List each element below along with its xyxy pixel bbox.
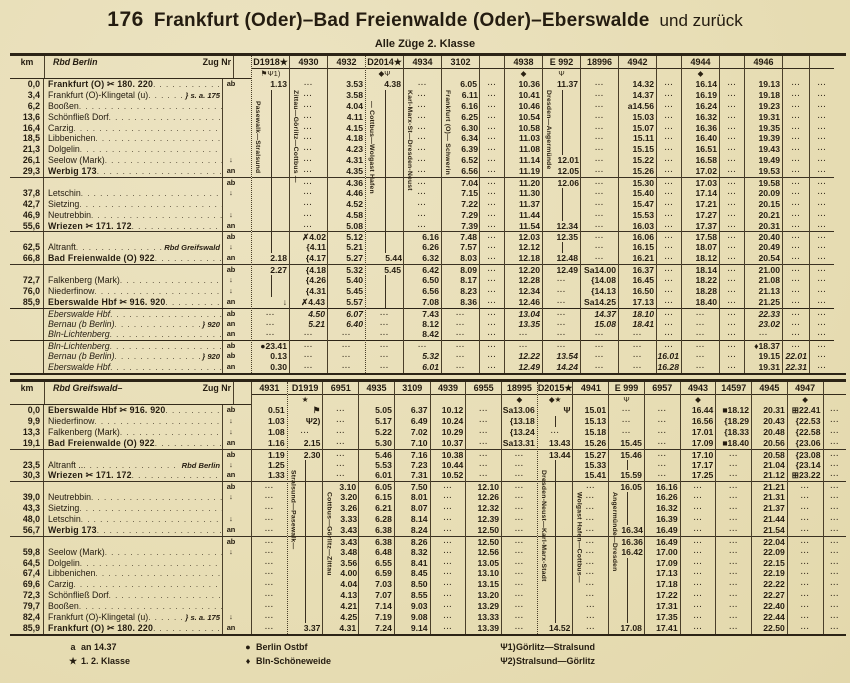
time-cell: 8.36 [442,297,479,308]
time-cell: ... [581,242,618,253]
time-cell: ... [502,481,537,492]
station-name: Falkenberg (Mark) [48,275,120,286]
station-km: 64,5 [10,558,44,569]
time-cell: ... [810,188,834,199]
time-cell: ✗4.43 [290,297,327,308]
time-cell: ... [480,297,504,308]
time-cell: 6.38 [359,536,394,547]
time-cell: ... [720,123,744,134]
train-symbol: Ψ [609,395,644,405]
time-cell: 20.58 [752,449,787,460]
time-cell: ... [681,623,716,634]
through-line [271,123,272,134]
arrival-departure-mark: ab [222,265,239,275]
arrival-departure-mark [222,144,239,155]
time-cell: ... [290,329,327,340]
through-line [555,503,556,514]
train-column-D2014: D2014★◆Ψ4.385.445.45..................— … [365,56,404,373]
time-cell: ... [581,177,618,188]
time-cell: 20.56 [752,438,787,449]
time-cell: 11.19 [505,166,542,177]
time-cell: ... [720,253,744,264]
arrival-departure-mark [222,112,239,123]
time-cell: ... [657,253,681,264]
legend-text: Bln-Schöneweide [256,656,331,666]
time-cell: ... [442,351,479,362]
time-cell: ... [466,460,501,471]
time-cell: ... [581,90,618,101]
time-cell: ... [657,319,681,330]
dot-leader [81,188,222,199]
time-cell: 21.00 [745,264,782,275]
arrival-departure-mark: ab [222,79,239,90]
dot-leader [95,568,222,579]
time-cell: ... [466,427,501,438]
time-cell: 4.31 [323,623,358,634]
time-cell: 17.01 [681,427,716,438]
time-cell: ... [480,264,504,275]
time-cell: 6.16 [404,231,441,242]
time-cell [538,460,573,471]
time-cell: 6.56 [404,286,441,297]
time-cell: ... [824,405,847,416]
time-cell: 19.53 [745,166,782,177]
time-cell: 15.07 [619,123,656,134]
time-cell: 5.22 [359,427,394,438]
time-cell: ... [720,112,744,123]
time-cell: ... [681,481,716,492]
train-number: 18995 [502,382,537,395]
train-column-18995: 18995◆Sa13.06{13.18{13.24Sa13.31........… [501,382,537,634]
through-line [271,242,272,253]
time-cell: 4.04 [328,101,365,112]
station-km: 39,0 [10,492,44,503]
time-cell: ... [824,525,847,536]
time-cell: Sa14.25 [581,297,618,308]
arrival-departure-mark [222,579,239,590]
train-column-18996: 18996...................................… [580,56,618,373]
time-cell: 7.03 [359,579,394,590]
train-symbol [619,69,656,79]
time-cell: ... [581,253,618,264]
arrival-departure-mark: ↓ [222,612,239,623]
time-cell: 19.35 [745,123,782,134]
time-cell: 19.49 [745,155,782,166]
time-cell: 16.21 [619,253,656,264]
time-cell: ... [783,199,809,210]
through-line [385,210,386,221]
time-cell: 15.40 [619,188,656,199]
station-row: 13,6Schönfließ Dorf [10,112,251,123]
train-number: 4945 [752,382,787,395]
time-cell: ... [543,297,580,308]
time-cell: 13.05 [466,558,501,569]
through-line [562,112,563,123]
station-km: 76,0 [10,286,44,297]
time-cell: ... [681,558,716,569]
time-cell: 4.18 [328,133,365,144]
time-cell: 5.57 [328,297,365,308]
train-column-4944: 4944◆16.1416.1916.2416.3216.3616.4016.51… [681,56,719,373]
time-cell: ... [720,133,744,144]
time-cell: 17.58 [682,231,719,242]
time-cell: 20.49 [745,242,782,253]
train-number: 3109 [395,382,430,395]
zugnr-header: Zug Nr [165,56,233,78]
time-cell: ... [581,123,618,134]
time-cell: 21.31 [752,492,787,503]
time-cell: 10.54 [505,112,542,123]
route-label: — Cottbus—Wolgast Hafen [366,101,375,265]
through-line [562,133,563,144]
time-cell: ... [573,612,608,623]
time-cell: ... [581,166,618,177]
time-cell: 13.33 [466,612,501,623]
time-cell: 20.54 [745,253,782,264]
through-line [555,514,556,525]
time-cell: ... [824,601,847,612]
time-cell: ... [252,623,287,634]
arrival-departure-mark [222,590,239,601]
train-column-blank3: ........................................… [719,56,744,373]
legend-text: 1. 2. Klasse [81,656,130,666]
time-cell: ... [657,286,681,297]
train-column-4941: 494115.0115.1315.1815.2615.2715.3315.41.… [572,382,608,634]
time-cell: ⊞22.41 [788,405,823,416]
through-line [627,612,628,623]
time-cell: ... [720,199,744,210]
station-row: 43,3Sietzing [10,503,251,514]
time-cell: ... [290,362,327,373]
legend-item: Ψ1)Görlitz—Stralsund [500,642,780,652]
station-name: Altranft .. [48,460,83,471]
time-cell: ... [681,579,716,590]
time-cell: 1.25 [252,460,287,471]
train-column-blank2: ........................................… [656,56,681,373]
time-cell: ... [783,112,809,123]
train-number: 4931 [252,382,287,395]
time-cell: 17.18 [645,579,680,590]
station-row: 85,9Eberswalde Hbf ✂ 916. 920an [10,297,251,308]
time-cell: 17.13 [645,568,680,579]
station-name: Booßen [48,601,79,612]
time-cell: 1.13 [252,79,289,90]
train-number: D1919 [288,382,323,395]
time-cell: ... [480,133,504,144]
station-km: 0,0 [10,79,44,90]
time-cell: 6.26 [404,242,441,253]
train-column-4930: 4930....................................… [289,56,327,373]
time-cell: 6.48 [359,547,394,558]
time-cell: 15.11 [619,133,656,144]
train-symbol [745,69,782,79]
time-cell: ... [323,427,358,438]
time-cell: ... [619,329,656,340]
time-cell: ... [783,242,809,253]
station-km [10,232,44,242]
legend-item: aan 14.37 [65,642,240,652]
time-cell: 5.12 [328,231,365,242]
time-cell: {14.13 [581,286,618,297]
time-cell: 6.05 [442,79,479,90]
train-column-3109: 31096.376.497.027.107.167.237.317.508.01… [394,382,430,634]
train-symbol: ◆ [505,69,542,79]
time-cell: 17.08 [609,623,644,634]
through-line [305,568,306,579]
time-cell: ... [824,503,847,514]
train-number [783,56,809,69]
time-cell: ... [323,416,358,427]
time-cell: ... [783,329,809,340]
time-cell: ... [502,568,537,579]
time-cell: ... [502,470,537,481]
station-name: Bernau (b Berlin) [48,319,115,330]
time-cell: ... [810,362,834,373]
train-number: 4935 [359,382,394,395]
time-cell: 18.07 [682,242,719,253]
station-row: 26,1Seelow (Mark)↓ [10,155,251,166]
arrival-departure-mark [222,101,239,112]
time-cell: 10.12 [431,405,466,416]
station-row: ab [10,177,251,188]
time-cell: ... [502,449,537,460]
time-cell: ... [442,340,479,351]
time-cell: 11.20 [505,177,542,188]
time-cell: ... [720,297,744,308]
time-cell: ... [252,319,289,330]
train-symbol: ◆ [681,395,716,405]
time-cell: 11.14 [505,155,542,166]
time-cell: 12.22 [505,351,542,362]
station-km: 43,3 [10,503,44,514]
time-cell: 16.14 [682,79,719,90]
through-line [305,503,306,514]
time-cell: ... [431,601,466,612]
through-line [385,232,386,242]
time-cell: 17.31 [645,601,680,612]
time-cell [609,590,644,601]
time-cell: ... [657,221,681,232]
time-cell: ... [323,470,358,481]
time-cell: ... [480,351,504,362]
time-cell: ... [783,188,809,199]
arrival-departure-mark: ↓ [222,492,239,503]
time-cell: ●23.41 [252,340,289,351]
time-cell: ... [581,351,618,362]
train-symbol: ◆★ [538,395,573,405]
dot-leader [94,286,222,297]
station-name: Wriezen ✂ 171. 172 [48,221,132,232]
station-km: 18,5 [10,133,44,144]
arrival-departure-mark: ↓ [222,286,239,297]
through-line [627,514,628,525]
time-cell: ... [645,460,680,471]
through-line [385,275,386,286]
time-cell: ... [404,340,441,351]
time-cell: ... [788,601,823,612]
time-cell: ... [657,177,681,188]
station-row: Eberswalde Hbfan [10,362,251,373]
station-name: Niederfinow [48,286,94,297]
through-line [385,155,386,166]
through-line [562,199,563,210]
time-cell: ... [681,547,716,558]
time-cell: 5.21 [290,319,327,330]
time-cell: 8.42 [404,329,441,340]
station-row: 79,7Booßen [10,601,251,612]
time-cell: Ψ2) [288,416,323,427]
station-note: Rbd Greifswald [162,243,222,253]
time-cell: ... [720,221,744,232]
dot-leader [94,416,222,427]
time-cell: 12.49 [505,362,542,373]
time-cell: 10.29 [431,427,466,438]
arrival-departure-mark: ↓ [222,427,239,438]
station-row: 72,3Schönfließ Dorf [10,590,251,601]
time-cell: 7.57 [442,242,479,253]
dot-leader [110,329,222,340]
time-cell [609,460,644,471]
station-km: 46,9 [10,210,44,221]
time-cell: 16.51 [682,144,719,155]
time-cell: ... [824,514,847,525]
through-line [627,601,628,612]
time-cell: 8.24 [395,525,430,536]
time-cell: 13.39 [466,623,501,634]
time-cell: 4.52 [328,199,365,210]
time-cell: ... [810,199,834,210]
time-cell: ... [502,612,537,623]
time-cell: 6.49 [395,416,430,427]
time-cell [288,460,323,471]
time-cell: Ψ [538,405,573,416]
time-cell: 16.05 [609,481,644,492]
time-cell: ... [290,340,327,351]
station-row: 23,5Altranft ..Rbd Berlin↓ [10,460,251,471]
time-cell: ... [720,210,744,221]
time-cell: 7.02 [395,427,430,438]
time-cell: 22.44 [752,612,787,623]
dot-leader [79,101,222,112]
time-cell: 18.41 [619,319,656,330]
station-name: Frankfurt (O)-Klingetal (u) [48,90,148,101]
through-line [271,210,272,221]
arrival-departure-mark [222,558,239,569]
through-line [271,155,272,166]
dot-leader [109,112,222,123]
time-cell: 2.27 [252,264,289,275]
train-number: D2014★ [366,56,403,69]
time-cell: 6.37 [395,405,430,416]
time-cell: ... [431,590,466,601]
time-cell: 22.22 [752,579,787,590]
train-symbol: ◆Ψ [366,69,403,79]
through-line [555,601,556,612]
time-cell: ... [681,492,716,503]
time-cell: ... [783,166,809,177]
time-cell: ... [824,612,847,623]
time-cell: ... [581,362,618,373]
time-cell: ... [720,188,744,199]
time-cell: ... [480,123,504,134]
time-cell: ... [502,503,537,514]
time-cell: ... [657,188,681,199]
train-number: 18996 [581,56,618,69]
train-number [657,56,681,69]
time-cell: 18.28 [682,286,719,297]
arrival-departure-mark: an [222,221,239,232]
time-cell: 16.06 [619,231,656,242]
station-km: 55,6 [10,221,44,232]
train-column-4938: 4938◆10.3610.4110.4610.5410.5811.0311.08… [504,56,542,373]
time-cell: ... [480,242,504,253]
time-cell: 7.50 [395,481,430,492]
train-number: 4939 [431,382,466,395]
time-cell [609,601,644,612]
time-cell: ... [681,514,716,525]
station-km [10,341,44,351]
station-row: Bernau (b Berlin)} 920an [10,319,251,330]
time-cell: 16.32 [682,112,719,123]
train-symbol [442,69,479,79]
station-row: 82,4Frankfurt (O)-Klingetal (u)} s. a. 1… [10,612,251,623]
station-block: kmRbd Greifswald–Zug Nr0,0Eberswalde Hbf… [10,382,251,634]
train-column-D1918: D1918★⚑Ψ1)1.132.182.27↓.........●23.410.… [251,56,290,373]
time-cell: ... [783,79,809,90]
time-cell: 16.39 [645,514,680,525]
through-line [271,112,272,123]
through-line [555,590,556,601]
station-note: } 920 [200,352,222,362]
through-line [385,178,386,188]
time-cell: 6.07 [328,308,365,319]
station-km: 69,6 [10,579,44,590]
through-line [305,525,306,536]
time-cell: 4.15 [328,123,365,134]
time-cell: 10.38 [431,449,466,460]
time-cell: ... [720,144,744,155]
time-cell: ... [810,79,834,90]
time-cell: ... [581,133,618,144]
route-label: Cottbus—Görlitz—Zittau [323,492,332,623]
station-row: 66,8Bad Freienwalde (O) 922an [10,253,251,264]
time-cell: 16.58 [682,155,719,166]
through-line [271,221,272,232]
time-cell: 20.15 [745,199,782,210]
station-name: Letschin [48,514,81,525]
through-line [555,612,556,623]
train-number: 4946 [745,56,782,69]
time-cell: 15.41 [573,470,608,481]
time-cell: 20.21 [745,210,782,221]
through-line [271,232,272,242]
station-name: Bad Freienwalde (O) 922 [48,438,155,449]
time-cell: 16.24 [682,101,719,112]
station-name: Wriezen ✂ 171. 172 [48,470,132,481]
legend-item: ★1. 2. Klasse [65,656,240,667]
arrival-departure-mark: ab [222,450,239,460]
time-cell: ... [720,242,744,253]
time-cell: ... [783,253,809,264]
station-name: Eberswalde Hbf ✂ 916. 920 [48,297,166,308]
through-line [562,188,563,199]
time-cell: ... [366,340,403,351]
time-cell: ⊞23.22 [788,470,823,481]
through-line [385,221,386,232]
train-column-blank5: ........................................… [809,56,834,373]
time-cell: 11.37 [505,199,542,210]
time-cell: ... [720,286,744,297]
